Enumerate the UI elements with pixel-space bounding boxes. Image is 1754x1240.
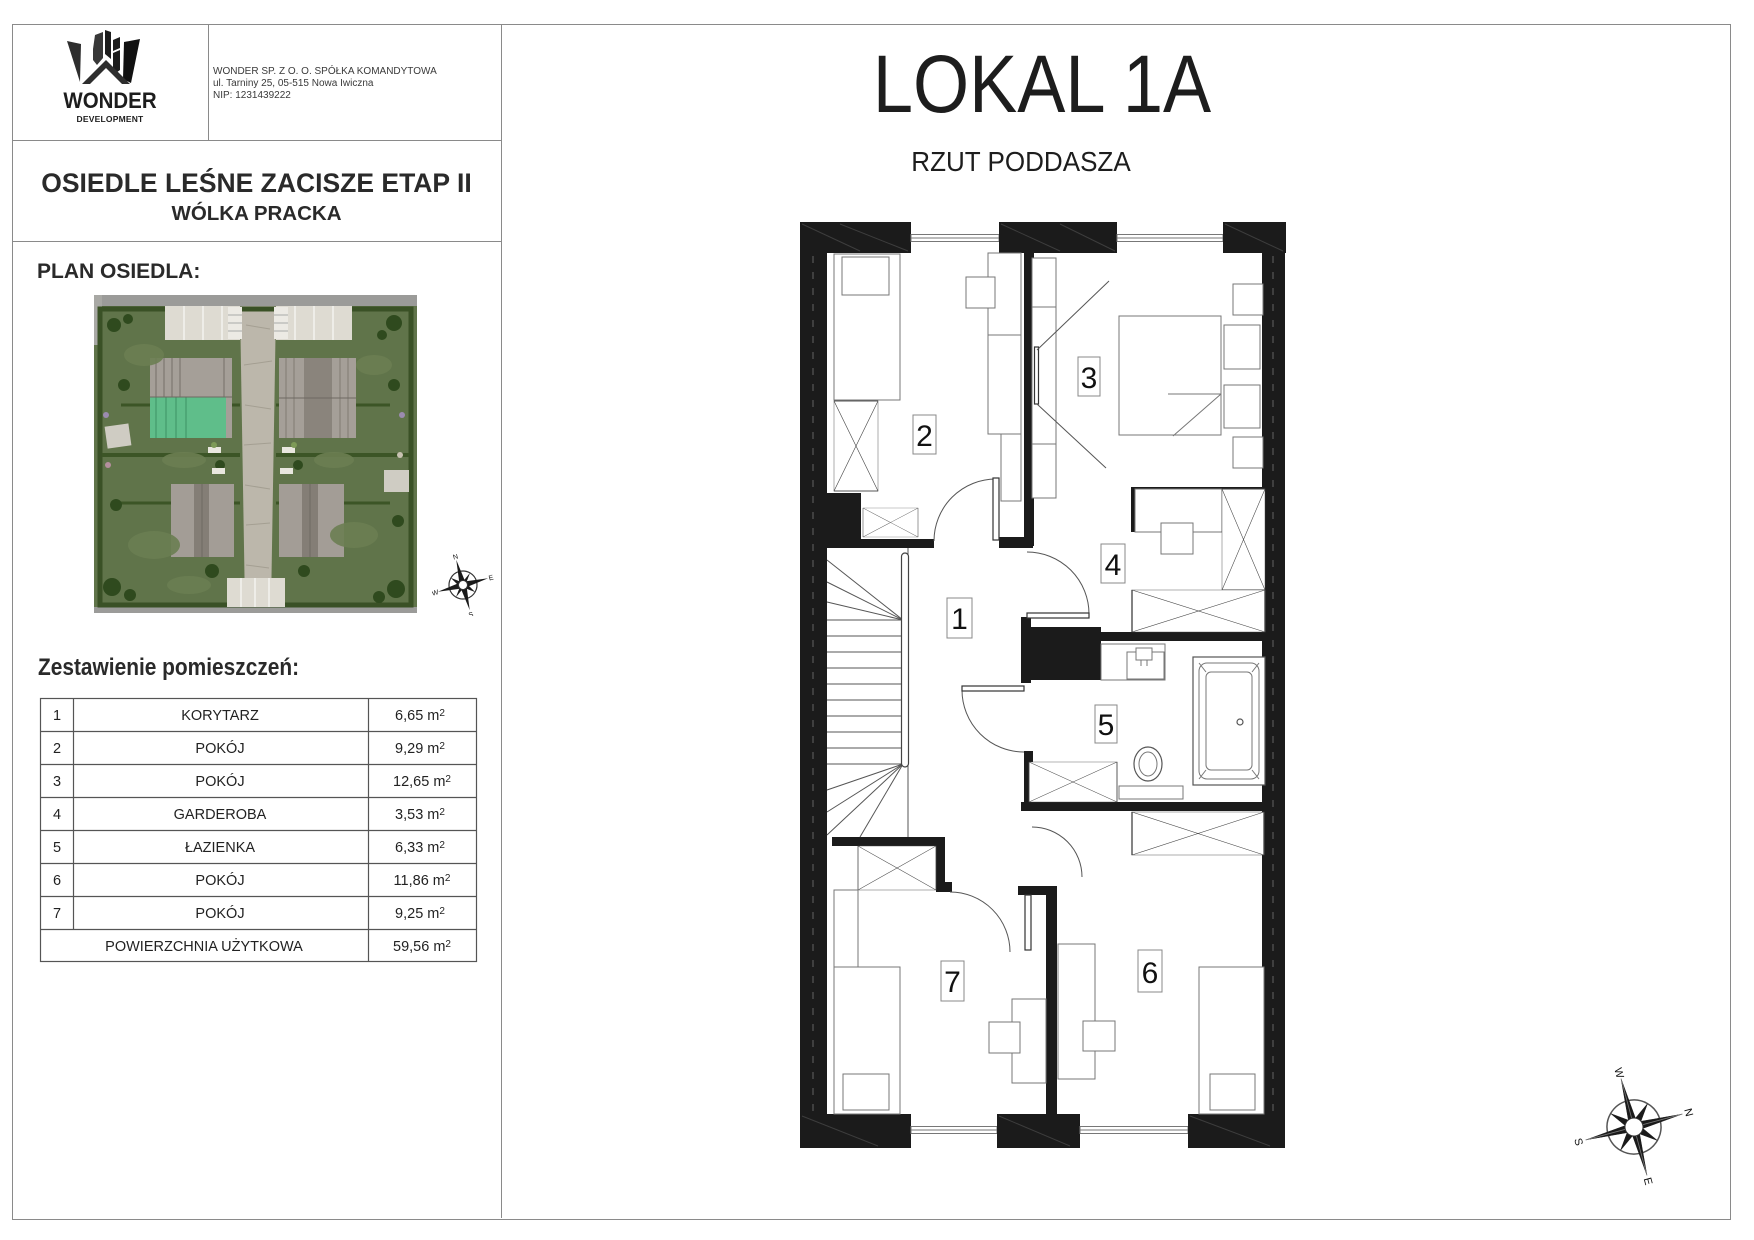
svg-text:7: 7 <box>53 906 61 922</box>
svg-text:E: E <box>1641 1176 1654 1186</box>
svg-text:3,53 m2: 3,53 m2 <box>395 807 445 823</box>
svg-text:POKÓJ: POKÓJ <box>195 872 244 889</box>
svg-text:1: 1 <box>951 603 968 636</box>
svg-text:6: 6 <box>53 873 61 889</box>
svg-text:6,33 m2: 6,33 m2 <box>395 840 445 856</box>
svg-text:11,86 m2: 11,86 m2 <box>394 873 451 889</box>
svg-text:KORYTARZ: KORYTARZ <box>181 708 259 724</box>
svg-text:3: 3 <box>53 774 61 790</box>
svg-text:4: 4 <box>1105 549 1122 582</box>
svg-text:2: 2 <box>53 741 61 757</box>
svg-text:3: 3 <box>1081 362 1098 395</box>
svg-text:59,56 m2: 59,56 m2 <box>393 939 451 955</box>
svg-text:W: W <box>1611 1067 1625 1080</box>
svg-text:POKÓJ: POKÓJ <box>195 905 244 922</box>
svg-text:6: 6 <box>1142 957 1159 990</box>
svg-text:9,25 m2: 9,25 m2 <box>395 906 445 922</box>
svg-text:5: 5 <box>1098 709 1115 742</box>
svg-text:GARDEROBA: GARDEROBA <box>174 807 267 823</box>
svg-text:1: 1 <box>53 708 61 724</box>
svg-text:9,29 m2: 9,29 m2 <box>395 741 445 757</box>
svg-text:ŁAZIENKA: ŁAZIENKA <box>185 840 255 856</box>
svg-text:4: 4 <box>53 807 61 823</box>
svg-text:7: 7 <box>944 966 961 999</box>
svg-text:S: S <box>1574 1137 1585 1147</box>
svg-text:POKÓJ: POKÓJ <box>195 773 244 790</box>
svg-text:5: 5 <box>53 840 61 856</box>
svg-text:6,65 m2: 6,65 m2 <box>395 708 445 724</box>
svg-text:N: N <box>1681 1107 1694 1118</box>
svg-text:2: 2 <box>916 420 933 453</box>
svg-text:12,65 m2: 12,65 m2 <box>393 774 451 790</box>
svg-text:POKÓJ: POKÓJ <box>195 740 244 757</box>
svg-text:POWIERZCHNIA UŻYTKOWA: POWIERZCHNIA UŻYTKOWA <box>105 937 303 955</box>
